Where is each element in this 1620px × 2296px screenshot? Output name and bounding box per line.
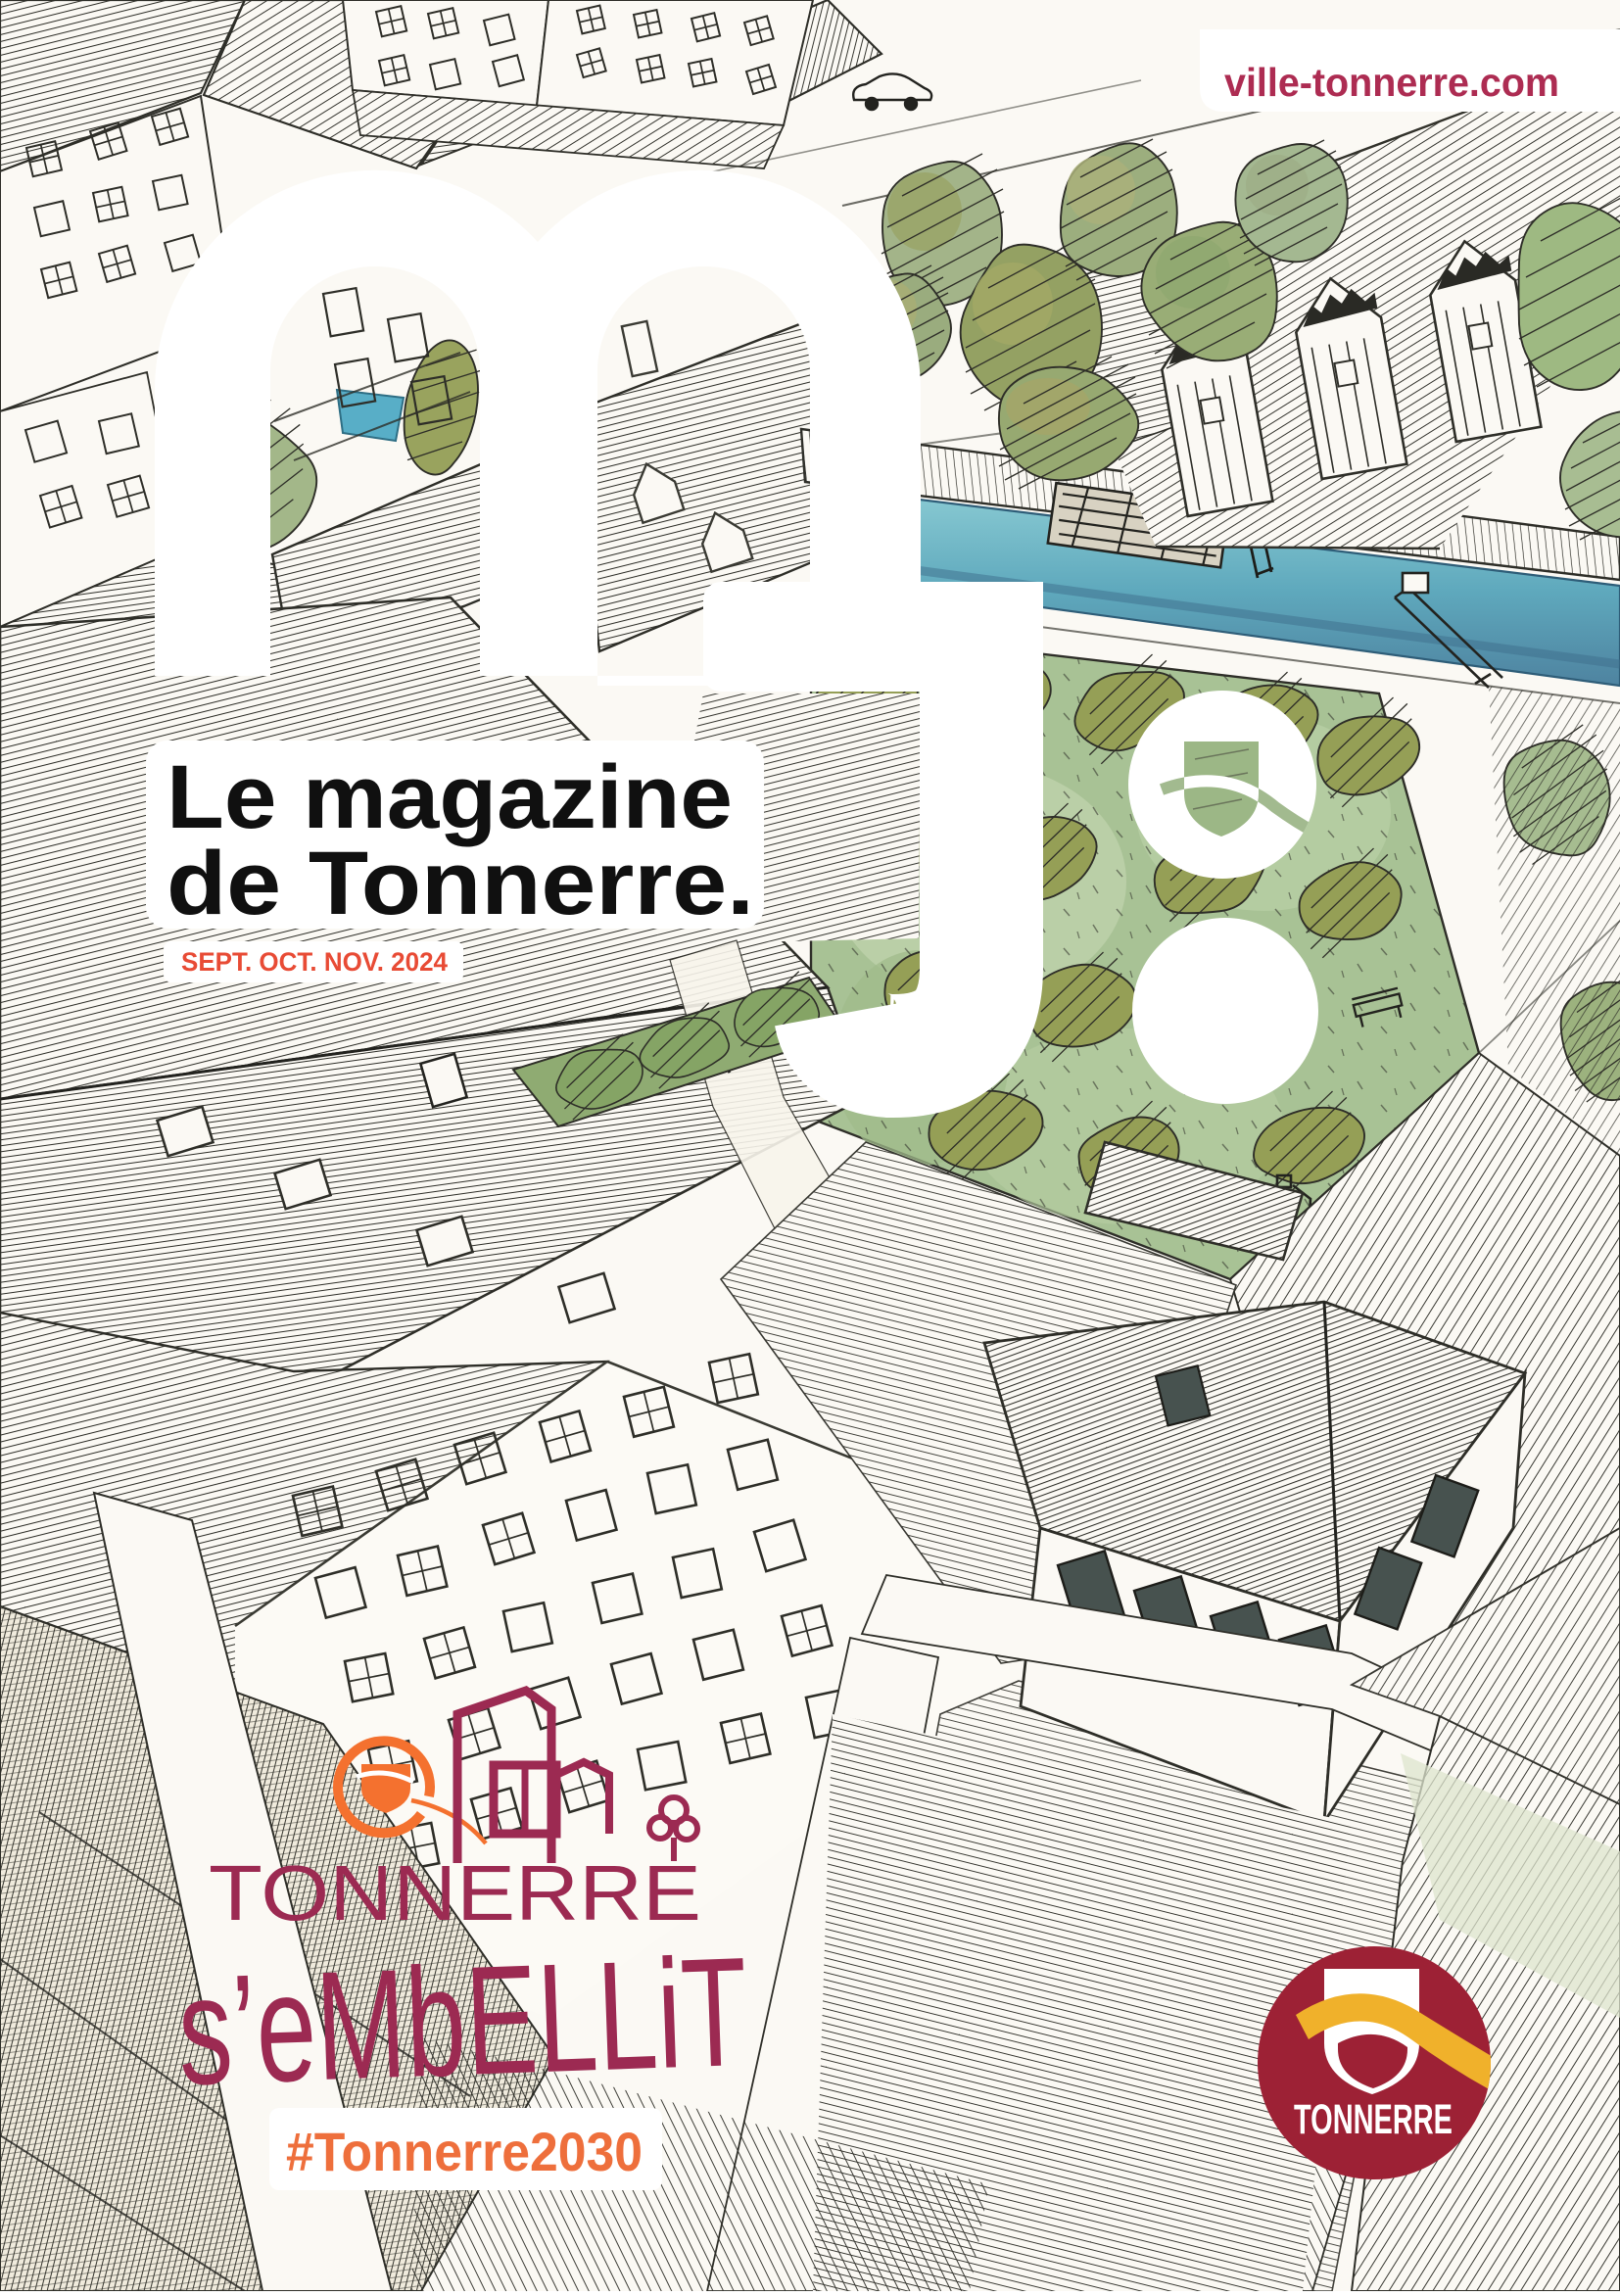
svg-text:s’eMbELLiT: s’eMbELLiT	[175, 1926, 750, 2118]
svg-text:TONNERRE: TONNERRE	[1294, 2096, 1453, 2143]
svg-text:TONNERRE: TONNERRE	[209, 1849, 701, 1937]
svg-text:Le magazine: Le magazine	[167, 747, 733, 847]
svg-text:de Tonnerre.: de Tonnerre.	[167, 834, 754, 933]
svg-text:ville-tonnerre.com: ville-tonnerre.com	[1224, 60, 1559, 105]
svg-text:#Tonnerre2030: #Tonnerre2030	[286, 2121, 643, 2182]
svg-text:SEPT. OCT. NOV. 2024: SEPT. OCT. NOV. 2024	[181, 947, 448, 977]
